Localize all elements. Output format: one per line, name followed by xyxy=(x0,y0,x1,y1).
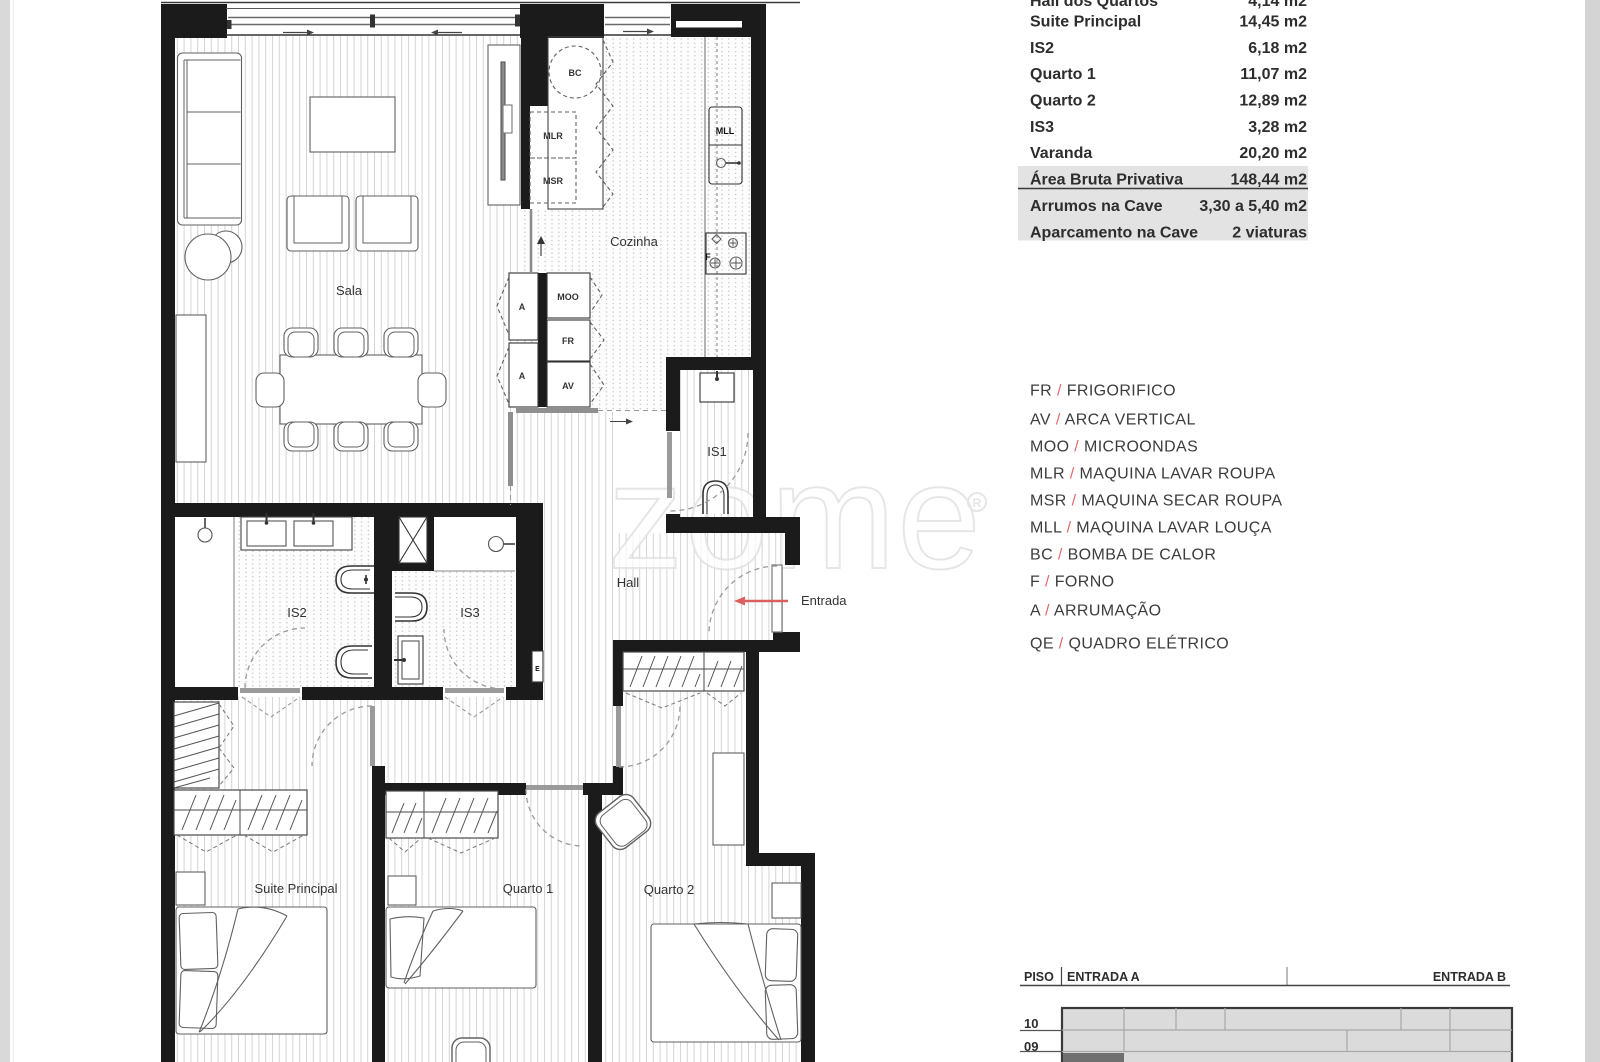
svg-text:Quarto 1: Quarto 1 xyxy=(1030,66,1096,83)
svg-text:Suite Principal: Suite Principal xyxy=(254,881,337,896)
svg-text:12,89 m2: 12,89 m2 xyxy=(1239,93,1307,110)
svg-text:A / ARRUMAÇÃO: A / ARRUMAÇÃO xyxy=(1030,600,1161,620)
svg-text:Hall dos Quartos: Hall dos Quartos xyxy=(1030,0,1158,10)
svg-text:FR / FRIGORIFICO: FR / FRIGORIFICO xyxy=(1030,383,1176,400)
svg-text:BC / BOMBA DE CALOR: BC / BOMBA DE CALOR xyxy=(1030,547,1216,564)
svg-text:Entrada: Entrada xyxy=(801,593,847,608)
svg-text:Quarto 2: Quarto 2 xyxy=(644,882,695,897)
svg-text:14,45 m2: 14,45 m2 xyxy=(1239,14,1307,31)
svg-text:F: F xyxy=(705,252,711,262)
svg-text:Cozinha: Cozinha xyxy=(610,234,658,249)
svg-text:148,44 m2: 148,44 m2 xyxy=(1230,172,1307,189)
svg-text:3,30 a 5,40 m2: 3,30 a 5,40 m2 xyxy=(1199,198,1307,215)
svg-text:2 viaturas: 2 viaturas xyxy=(1232,225,1307,242)
svg-text:Varanda: Varanda xyxy=(1030,145,1092,162)
svg-text:AV: AV xyxy=(562,381,574,391)
svg-text:MLR: MLR xyxy=(543,131,563,141)
svg-text:MOO / MICROONDAS: MOO / MICROONDAS xyxy=(1030,439,1198,456)
svg-text:4,14 m2: 4,14 m2 xyxy=(1248,0,1307,10)
svg-text:R: R xyxy=(973,496,982,510)
svg-text:20,20 m2: 20,20 m2 xyxy=(1239,145,1307,162)
svg-text:3,28 m2: 3,28 m2 xyxy=(1248,119,1307,136)
svg-text:Suite Principal: Suite Principal xyxy=(1030,14,1141,31)
svg-text:ENTRADA B: ENTRADA B xyxy=(1433,970,1506,984)
svg-text:BC: BC xyxy=(569,68,582,78)
svg-text:Área Bruta Privativa: Área Bruta Privativa xyxy=(1030,170,1183,189)
svg-text:11,07 m2: 11,07 m2 xyxy=(1240,66,1307,83)
svg-text:6,18 m2: 6,18 m2 xyxy=(1248,40,1307,57)
svg-text:AV / ARCA VERTICAL: AV / ARCA VERTICAL xyxy=(1030,412,1196,429)
svg-text:10: 10 xyxy=(1024,1016,1038,1031)
svg-text:MOO: MOO xyxy=(557,292,579,302)
svg-text:Arrumos na Cave: Arrumos na Cave xyxy=(1030,198,1163,215)
svg-text:Sala: Sala xyxy=(336,283,363,298)
svg-text:E: E xyxy=(535,666,540,673)
svg-text:IS2: IS2 xyxy=(1030,40,1054,57)
svg-text:F / FORNO: F / FORNO xyxy=(1030,574,1115,591)
svg-text:zome: zome xyxy=(608,432,983,600)
svg-text:A: A xyxy=(519,371,526,381)
svg-text:MSR / MAQUINA SECAR ROUPA: MSR / MAQUINA SECAR ROUPA xyxy=(1030,493,1282,510)
svg-text:ENTRADA A: ENTRADA A xyxy=(1067,970,1140,984)
svg-text:IS1: IS1 xyxy=(707,444,727,459)
svg-text:A: A xyxy=(519,302,526,312)
svg-text:Quarto 2: Quarto 2 xyxy=(1030,93,1096,110)
svg-text:MLL: MLL xyxy=(716,126,735,136)
svg-text:IS3: IS3 xyxy=(460,605,480,620)
svg-text:MLL / MAQUINA LAVAR LOUÇA: MLL / MAQUINA LAVAR LOUÇA xyxy=(1030,520,1272,537)
svg-text:QE / QUADRO ELÉTRICO: QE / QUADRO ELÉTRICO xyxy=(1030,634,1229,653)
svg-text:IS2: IS2 xyxy=(287,605,307,620)
svg-text:IS3: IS3 xyxy=(1030,119,1054,136)
svg-text:MSR: MSR xyxy=(543,176,564,186)
svg-text:Hall: Hall xyxy=(617,575,640,590)
svg-text:Aparcamento na Cave: Aparcamento na Cave xyxy=(1030,225,1198,242)
svg-text:Quarto 1: Quarto 1 xyxy=(503,881,554,896)
svg-text:PISO: PISO xyxy=(1024,970,1054,984)
svg-text:FR: FR xyxy=(562,336,574,346)
svg-text:MLR / MAQUINA LAVAR ROUPA: MLR / MAQUINA LAVAR ROUPA xyxy=(1030,466,1276,483)
